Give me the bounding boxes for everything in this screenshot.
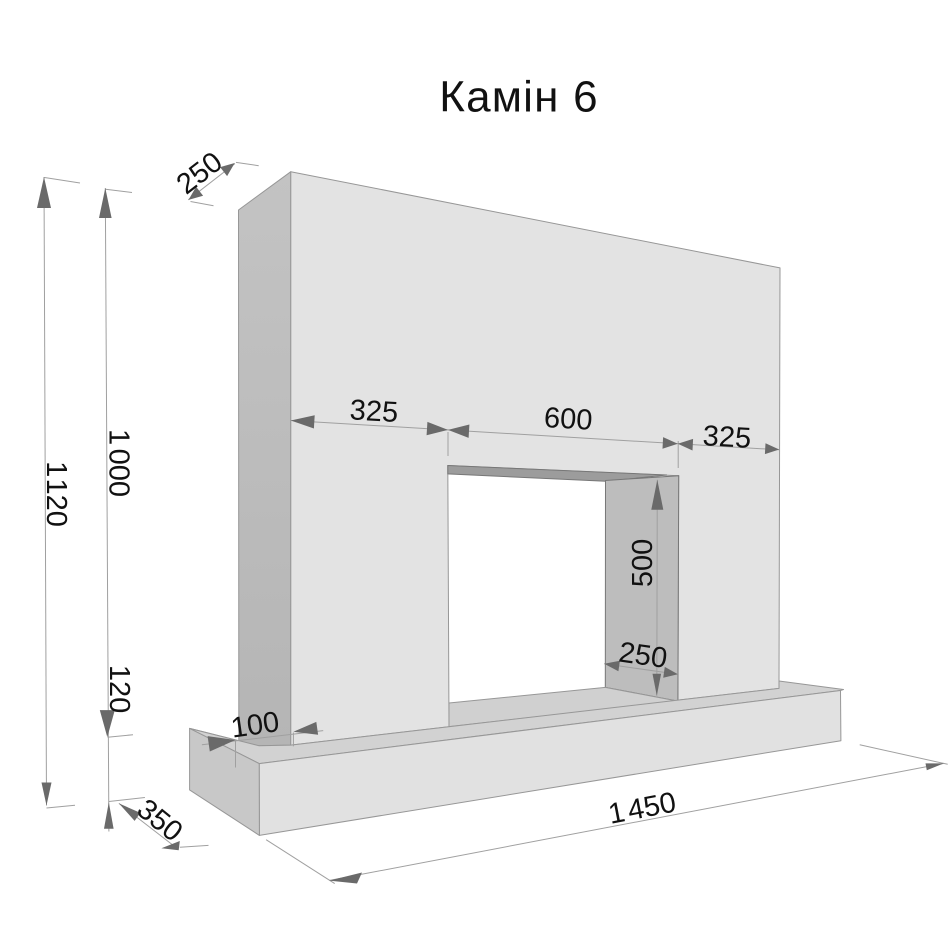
svg-text:250: 250 — [171, 146, 229, 201]
svg-text:500: 500 — [627, 539, 659, 587]
svg-text:250: 250 — [617, 636, 669, 674]
svg-text:120: 120 — [103, 665, 135, 713]
svg-text:600: 600 — [543, 402, 593, 437]
svg-text:1000: 1000 — [103, 429, 135, 497]
svg-text:1120: 1120 — [40, 461, 72, 527]
svg-text:325: 325 — [702, 420, 752, 455]
svg-text:350: 350 — [131, 793, 189, 848]
svg-text:Камін 6: Камін 6 — [439, 73, 599, 122]
svg-text:1450: 1450 — [606, 787, 679, 831]
svg-text:100: 100 — [229, 706, 281, 745]
svg-text:325: 325 — [349, 394, 399, 429]
